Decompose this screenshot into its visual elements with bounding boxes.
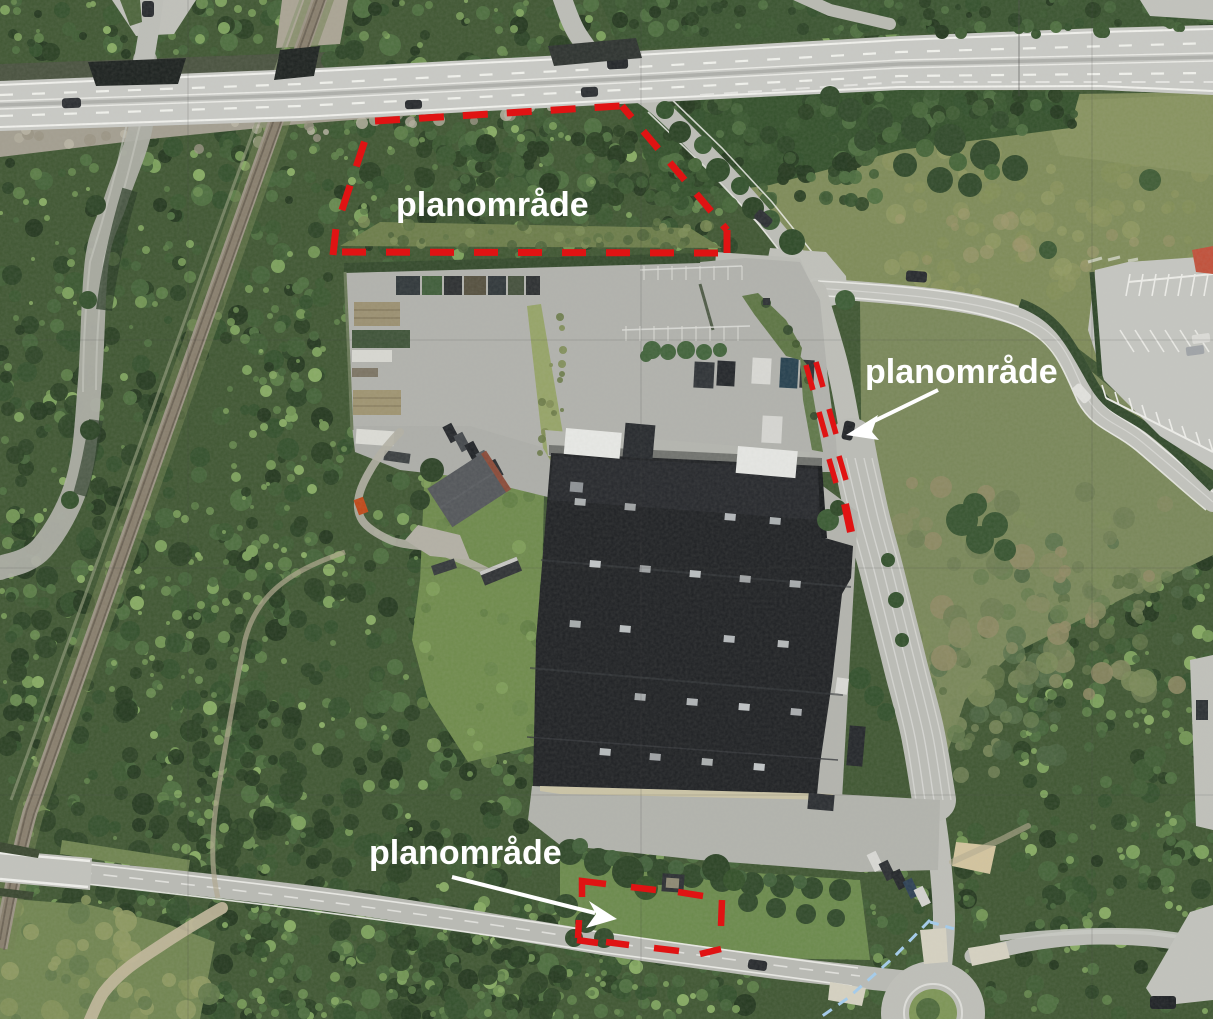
svg-text:planområde: planområde: [865, 353, 1058, 391]
svg-text:planområde: planområde: [396, 186, 589, 224]
svg-text:planområde: planområde: [369, 834, 562, 872]
